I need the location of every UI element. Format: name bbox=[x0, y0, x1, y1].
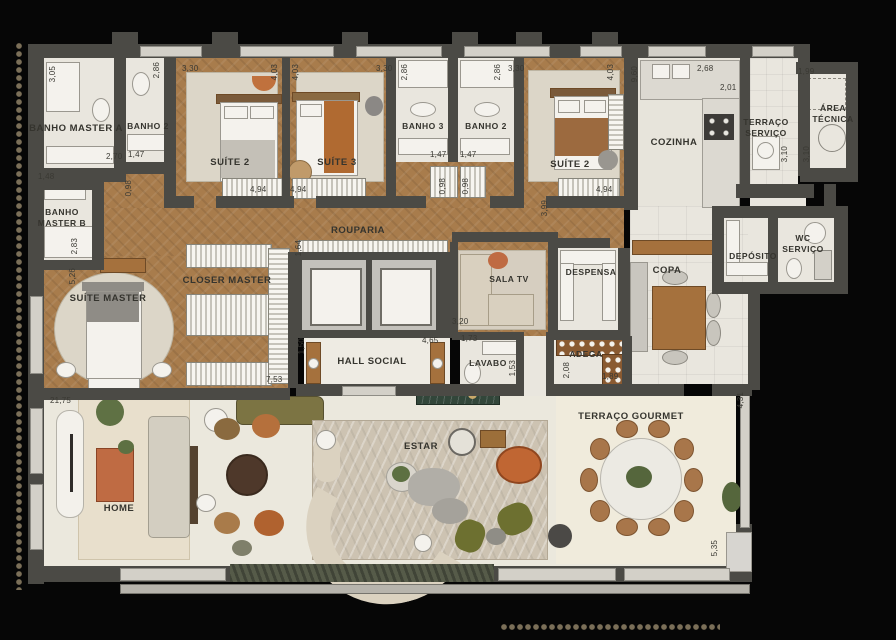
copa-console bbox=[632, 240, 718, 255]
dim-label: 9,60 bbox=[630, 66, 639, 82]
dim-label: 4,03 bbox=[291, 64, 300, 80]
sink-counter bbox=[127, 134, 165, 151]
wall-segment bbox=[28, 180, 98, 190]
wall-segment bbox=[740, 44, 750, 186]
wall-segment bbox=[548, 232, 558, 340]
window bbox=[356, 46, 442, 57]
room-label-rouparia: ROUPARIA bbox=[331, 225, 385, 237]
pouf bbox=[196, 494, 216, 512]
wall-segment bbox=[748, 294, 760, 390]
shower bbox=[814, 250, 832, 280]
wall-segment bbox=[452, 232, 556, 242]
dim-label: 3,30 bbox=[182, 64, 198, 73]
closet-shelf bbox=[186, 244, 272, 268]
dim-label: 3,20 bbox=[452, 317, 468, 326]
console-slim bbox=[190, 446, 198, 524]
wall-segment bbox=[712, 282, 848, 294]
window bbox=[752, 46, 794, 57]
wall-segment bbox=[114, 162, 176, 174]
pouf bbox=[488, 252, 508, 269]
toilet bbox=[786, 258, 802, 279]
plant bbox=[392, 466, 410, 482]
kitchen-sink bbox=[652, 64, 670, 79]
chair bbox=[684, 468, 703, 492]
dim-label: 21,75 bbox=[50, 396, 71, 405]
room-label-suite-master: SUÍTE MASTER bbox=[70, 293, 147, 305]
sink bbox=[410, 102, 436, 117]
dim-label: 5,26 bbox=[68, 268, 77, 284]
dim-label: 1,47 bbox=[430, 150, 446, 159]
dim-label: 1,48 bbox=[38, 172, 54, 181]
chair bbox=[706, 320, 721, 346]
room-label-terraco-servico: TERRAÇO SERVIÇO bbox=[735, 117, 797, 138]
armchair bbox=[254, 510, 284, 536]
armchair bbox=[214, 512, 240, 534]
bench bbox=[236, 396, 324, 425]
dim-label: 4,94 bbox=[596, 185, 612, 194]
pillow bbox=[224, 106, 248, 119]
room-label-sala-tv: SALA TV bbox=[489, 274, 529, 285]
sofa bbox=[148, 416, 190, 538]
hedge bbox=[230, 564, 494, 582]
chair bbox=[648, 518, 670, 536]
window bbox=[464, 46, 550, 57]
dim-label: 4,94 bbox=[250, 185, 266, 194]
dim-label: 5,35 bbox=[710, 540, 719, 556]
room-label-suite-3: SUÍTE 3 bbox=[317, 157, 356, 169]
dim-label: 4,65 bbox=[422, 336, 438, 345]
window bbox=[624, 568, 730, 581]
wall-segment bbox=[712, 206, 846, 218]
wall-segment bbox=[556, 330, 622, 340]
room-label-despensa: DESPENSA bbox=[566, 267, 617, 278]
window bbox=[120, 568, 226, 581]
chair bbox=[580, 468, 598, 492]
room-label-adega: ADEGA bbox=[569, 349, 602, 360]
dim-label: 2,86 bbox=[152, 62, 161, 78]
dim-label: 2,86 bbox=[400, 64, 409, 80]
side-table bbox=[414, 534, 432, 552]
dim-label: 3,10 bbox=[780, 146, 789, 162]
dim-label: 1,47 bbox=[128, 150, 144, 159]
wardrobe bbox=[608, 94, 624, 150]
room-label-closer-master: CLOSER MASTER bbox=[183, 275, 272, 287]
floor-plan: BANHO MASTER A BANHO 2 SUÍTE 2 SUÍTE 3 B… bbox=[0, 0, 896, 640]
planter bbox=[548, 524, 572, 548]
sink-counter bbox=[46, 146, 114, 164]
nightstand bbox=[56, 362, 76, 378]
pillow bbox=[558, 100, 580, 113]
terrace-railing bbox=[740, 394, 750, 528]
room-label-suite-2-left: SUÍTE 2 bbox=[210, 157, 249, 169]
side-table bbox=[316, 430, 336, 450]
room-label-banho-3: BANHO 3 bbox=[402, 121, 444, 132]
room-label-cozinha: COZINHA bbox=[651, 137, 698, 149]
wall-segment bbox=[28, 260, 104, 270]
wall-segment bbox=[712, 206, 724, 294]
console bbox=[100, 258, 146, 273]
wall-segment bbox=[548, 384, 684, 396]
plant bbox=[118, 440, 134, 454]
dim-label: 3,10 bbox=[802, 146, 811, 162]
dim-label: 1,53 bbox=[508, 360, 517, 376]
dim-label: 0,98 bbox=[124, 180, 133, 196]
window bbox=[30, 484, 43, 550]
room-label-area-tecnica: ÁREA TÉCNICA bbox=[805, 103, 861, 124]
shower bbox=[44, 226, 94, 258]
wall-segment bbox=[448, 58, 458, 162]
wall-segment bbox=[164, 196, 194, 208]
dim-label: 1,99 bbox=[798, 67, 814, 76]
bed-blanket bbox=[555, 118, 609, 156]
room-label-copa: COPA bbox=[653, 265, 682, 277]
wall-segment bbox=[514, 58, 524, 196]
armchair bbox=[214, 418, 240, 440]
room-label-lavabo: LAVABO bbox=[469, 358, 507, 369]
elevator-cab bbox=[310, 268, 362, 326]
window bbox=[30, 408, 43, 474]
armchair bbox=[598, 150, 618, 170]
facade-bead-strip bbox=[12, 42, 26, 590]
wire-chair bbox=[448, 428, 476, 456]
dim-label: 1,50 bbox=[297, 338, 306, 354]
dim-label: 2,70 bbox=[106, 152, 122, 161]
plant bbox=[722, 482, 742, 512]
window bbox=[240, 46, 334, 57]
wall-segment bbox=[736, 184, 814, 198]
dim-label: 2,83 bbox=[70, 238, 79, 254]
room-label-hall-social: HALL SOCIAL bbox=[337, 356, 406, 368]
wall-segment bbox=[490, 196, 524, 208]
dim-label: 1,47 bbox=[460, 150, 476, 159]
pillar bbox=[726, 532, 752, 572]
chair bbox=[590, 500, 610, 522]
dim-label: 0,98 bbox=[438, 178, 447, 194]
room-label-wc-servico: WC SERVIÇO bbox=[775, 233, 831, 254]
wall-segment bbox=[800, 168, 858, 182]
chair bbox=[590, 438, 610, 460]
elevator-cab bbox=[380, 268, 432, 326]
sink bbox=[757, 142, 774, 159]
dim-label: 3,05 bbox=[48, 66, 57, 82]
dim-label: 4,03 bbox=[270, 64, 279, 80]
chair bbox=[662, 350, 688, 365]
pillow bbox=[584, 100, 606, 113]
dim-label: 3,30 bbox=[376, 64, 392, 73]
dim-label: 2,86 bbox=[493, 64, 502, 80]
lamp bbox=[432, 358, 443, 369]
toilet bbox=[92, 98, 110, 122]
wall-segment bbox=[556, 238, 610, 248]
dim-label: 4,03 bbox=[606, 64, 615, 80]
window bbox=[648, 46, 706, 57]
dim-label: 2,68 bbox=[697, 64, 713, 73]
fan-unit bbox=[818, 124, 846, 152]
room-label-estar: ESTAR bbox=[404, 441, 438, 453]
wall-segment bbox=[216, 196, 294, 208]
window bbox=[140, 46, 202, 57]
chair bbox=[706, 292, 721, 318]
room-label-banho-master-a: BANHO MASTER A bbox=[29, 123, 123, 135]
room-label-banho-2-right: BANHO 2 bbox=[465, 121, 507, 132]
closet-shelf bbox=[186, 294, 272, 336]
wall-segment bbox=[386, 58, 396, 196]
pillow bbox=[250, 106, 274, 119]
room-label-home: HOME bbox=[104, 503, 135, 515]
wall-segment bbox=[316, 196, 426, 208]
sink bbox=[474, 102, 500, 117]
wine-rack bbox=[602, 354, 624, 388]
room-label-terraco-gourmet: TERRAÇO GOURMET bbox=[578, 411, 684, 423]
plant-centerpiece bbox=[626, 466, 652, 488]
dim-label: 2,01 bbox=[720, 83, 736, 92]
dim-label: 2,08 bbox=[562, 362, 571, 378]
dim-label: 1,89 bbox=[602, 372, 618, 381]
door-threshold bbox=[342, 386, 396, 396]
wall-segment bbox=[834, 206, 848, 294]
chair bbox=[674, 438, 694, 460]
tv-screen bbox=[70, 434, 73, 492]
wall-segment bbox=[712, 384, 752, 396]
lamp bbox=[308, 358, 319, 369]
coffee-table bbox=[226, 454, 268, 496]
lounge-chair bbox=[496, 446, 542, 484]
wall-segment bbox=[452, 384, 524, 396]
dim-label: 0,98 bbox=[461, 178, 470, 194]
dim-label: 1,73 bbox=[461, 334, 477, 343]
dim-label: 3,99 bbox=[540, 200, 549, 216]
room-label-banho-2-left: BANHO 2 bbox=[127, 121, 169, 132]
chair bbox=[616, 518, 638, 536]
closet-shelf bbox=[186, 362, 272, 386]
chair bbox=[674, 500, 694, 522]
bar-cart bbox=[480, 430, 506, 448]
armchair bbox=[365, 96, 383, 116]
room-label-deposito: DEPÓSITO bbox=[729, 251, 777, 262]
room-label-suite-2-right: SUÍTE 2 bbox=[550, 159, 589, 171]
sofa-chaise bbox=[488, 294, 534, 326]
pouf bbox=[232, 540, 252, 556]
dim-label: 4,94 bbox=[290, 185, 306, 194]
dim-label: 3,30 bbox=[508, 64, 524, 73]
toilet bbox=[132, 72, 150, 96]
dim-label: 4,31 bbox=[736, 392, 745, 408]
kitchen-sink bbox=[672, 64, 690, 79]
media-cabinet bbox=[96, 448, 134, 502]
copa-table bbox=[652, 286, 706, 350]
wall-segment bbox=[282, 58, 290, 196]
nightstand bbox=[152, 362, 172, 378]
copa-cabinet bbox=[630, 262, 648, 352]
storage-shelf bbox=[726, 262, 768, 276]
armchair bbox=[252, 414, 280, 438]
pouf bbox=[486, 528, 506, 545]
room-label-banho-master-b: BANHO MASTER B bbox=[25, 207, 99, 228]
sink-counter bbox=[482, 341, 518, 355]
dim-label: 1,64 bbox=[294, 240, 303, 256]
pillow bbox=[300, 104, 322, 117]
plant bbox=[96, 398, 124, 426]
window bbox=[580, 46, 622, 57]
dim-label: 7,53 bbox=[266, 375, 282, 384]
floor-corridor-a bbox=[523, 336, 546, 396]
headboard bbox=[82, 282, 144, 291]
shower bbox=[460, 60, 514, 88]
window bbox=[30, 296, 43, 374]
wall-segment bbox=[288, 252, 298, 388]
wall-segment bbox=[546, 196, 638, 208]
window bbox=[498, 568, 616, 581]
wall-segment bbox=[618, 248, 630, 340]
stove bbox=[704, 114, 734, 140]
balcony-edge bbox=[120, 584, 750, 594]
facade-bead-strip bbox=[500, 622, 720, 634]
closet-shelf bbox=[268, 248, 290, 384]
